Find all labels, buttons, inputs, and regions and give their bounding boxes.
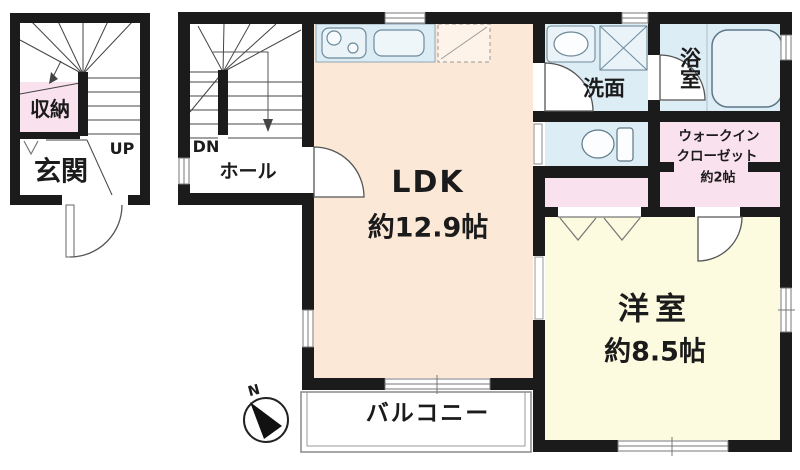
ldk-label: LDK (391, 168, 464, 198)
sink-icon (374, 30, 424, 56)
refrigerator-space-icon (438, 24, 490, 62)
ldk-size-label: 約12.9帖 (368, 215, 489, 242)
hall-label: ホール (219, 163, 276, 182)
kitchen-counter (316, 24, 435, 62)
first-floor-plan (10, 13, 150, 257)
bathtub-icon (712, 30, 782, 107)
bedroom-size-label: 約8.5帖 (604, 339, 706, 366)
floor-plan: 収納 玄関 UP DN ホール LDK 約12.9帖 洗面 浴室 ウォークイン … (0, 0, 800, 470)
entrance-door-arc-icon (66, 205, 122, 257)
ldk-room (314, 24, 533, 378)
storage-label: 収納 (30, 99, 70, 119)
compass-icon (244, 398, 288, 442)
bathroom-label: 浴室 (679, 47, 700, 89)
bedroom-room (545, 217, 780, 440)
washroom-label: 洗面 (583, 79, 625, 100)
entrance-label: 玄関 (34, 159, 88, 186)
vanity-sink-icon (547, 26, 595, 62)
bedroom-label: 洋室 (618, 295, 692, 326)
up-label: UP (110, 141, 135, 157)
dn-label: DN (193, 139, 220, 155)
wic-size-label: 約2帖 (700, 172, 735, 185)
toilet-door-icon (534, 124, 542, 164)
bedroom-closet (545, 178, 648, 207)
balcony-label: バルコニー (366, 403, 491, 426)
wic-label-line1: ウォークイン (679, 130, 760, 144)
washing-machine-icon (600, 26, 647, 70)
bedroom-sliding-door-icon (535, 257, 543, 319)
wic-label-line2: クローゼット (677, 150, 758, 164)
